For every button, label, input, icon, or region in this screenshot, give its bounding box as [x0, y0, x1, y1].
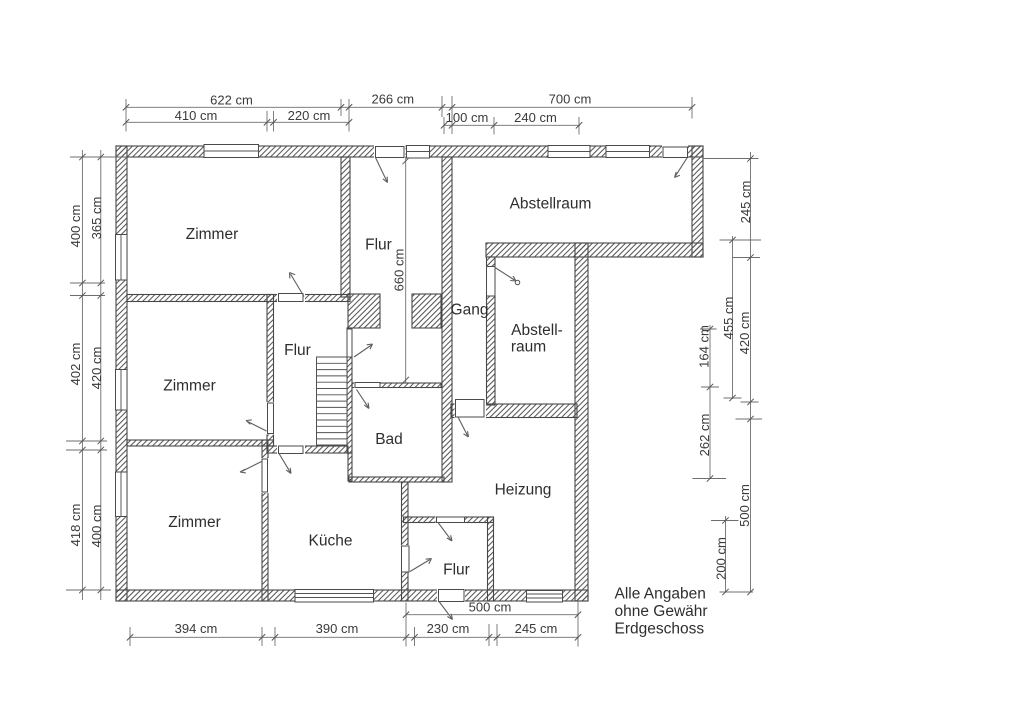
- svg-text:Flur: Flur: [443, 562, 470, 579]
- svg-text:Gang: Gang: [451, 302, 489, 319]
- svg-text:622 cm: 622 cm: [210, 93, 253, 108]
- svg-text:ohne Gewähr: ohne Gewähr: [615, 603, 708, 620]
- svg-text:Abstell-: Abstell-: [511, 322, 563, 339]
- svg-text:500 cm: 500 cm: [737, 484, 752, 527]
- svg-text:266 cm: 266 cm: [371, 92, 414, 107]
- svg-text:402 cm: 402 cm: [68, 343, 83, 386]
- svg-text:262 cm: 262 cm: [697, 414, 712, 457]
- svg-text:164 cm: 164 cm: [697, 325, 712, 368]
- svg-text:100 cm: 100 cm: [446, 110, 489, 125]
- svg-text:Flur: Flur: [284, 342, 311, 359]
- svg-text:400 cm: 400 cm: [68, 205, 83, 248]
- svg-text:400 cm: 400 cm: [89, 505, 104, 548]
- svg-text:700 cm: 700 cm: [549, 92, 592, 107]
- svg-text:200 cm: 200 cm: [714, 537, 729, 580]
- svg-text:390 cm: 390 cm: [316, 621, 359, 636]
- svg-text:500 cm: 500 cm: [469, 600, 512, 615]
- svg-text:Zimmer: Zimmer: [186, 226, 239, 243]
- svg-text:240 cm: 240 cm: [514, 110, 557, 125]
- svg-text:420 cm: 420 cm: [737, 312, 752, 355]
- svg-text:420 cm: 420 cm: [89, 347, 104, 390]
- svg-text:660 cm: 660 cm: [392, 249, 407, 292]
- svg-text:Flur: Flur: [365, 237, 392, 254]
- svg-text:245 cm: 245 cm: [738, 181, 753, 224]
- svg-text:Zimmer: Zimmer: [163, 378, 216, 395]
- svg-text:Bad: Bad: [375, 431, 403, 448]
- svg-text:Heizung: Heizung: [495, 482, 552, 499]
- svg-text:Küche: Küche: [309, 533, 353, 550]
- svg-text:230 cm: 230 cm: [427, 621, 470, 636]
- svg-text:raum: raum: [511, 339, 546, 356]
- svg-text:Erdgeschoss: Erdgeschoss: [615, 621, 705, 638]
- svg-text:394 cm: 394 cm: [175, 621, 218, 636]
- svg-text:410 cm: 410 cm: [175, 108, 218, 123]
- svg-text:418 cm: 418 cm: [68, 504, 83, 547]
- svg-text:365 cm: 365 cm: [89, 197, 104, 240]
- svg-text:245 cm: 245 cm: [515, 621, 558, 636]
- svg-text:Zimmer: Zimmer: [168, 514, 221, 531]
- svg-text:Abstellraum: Abstellraum: [510, 196, 592, 213]
- svg-text:Alle Angaben: Alle Angaben: [615, 586, 706, 603]
- svg-text:455 cm: 455 cm: [721, 297, 736, 340]
- svg-text:220 cm: 220 cm: [288, 108, 331, 123]
